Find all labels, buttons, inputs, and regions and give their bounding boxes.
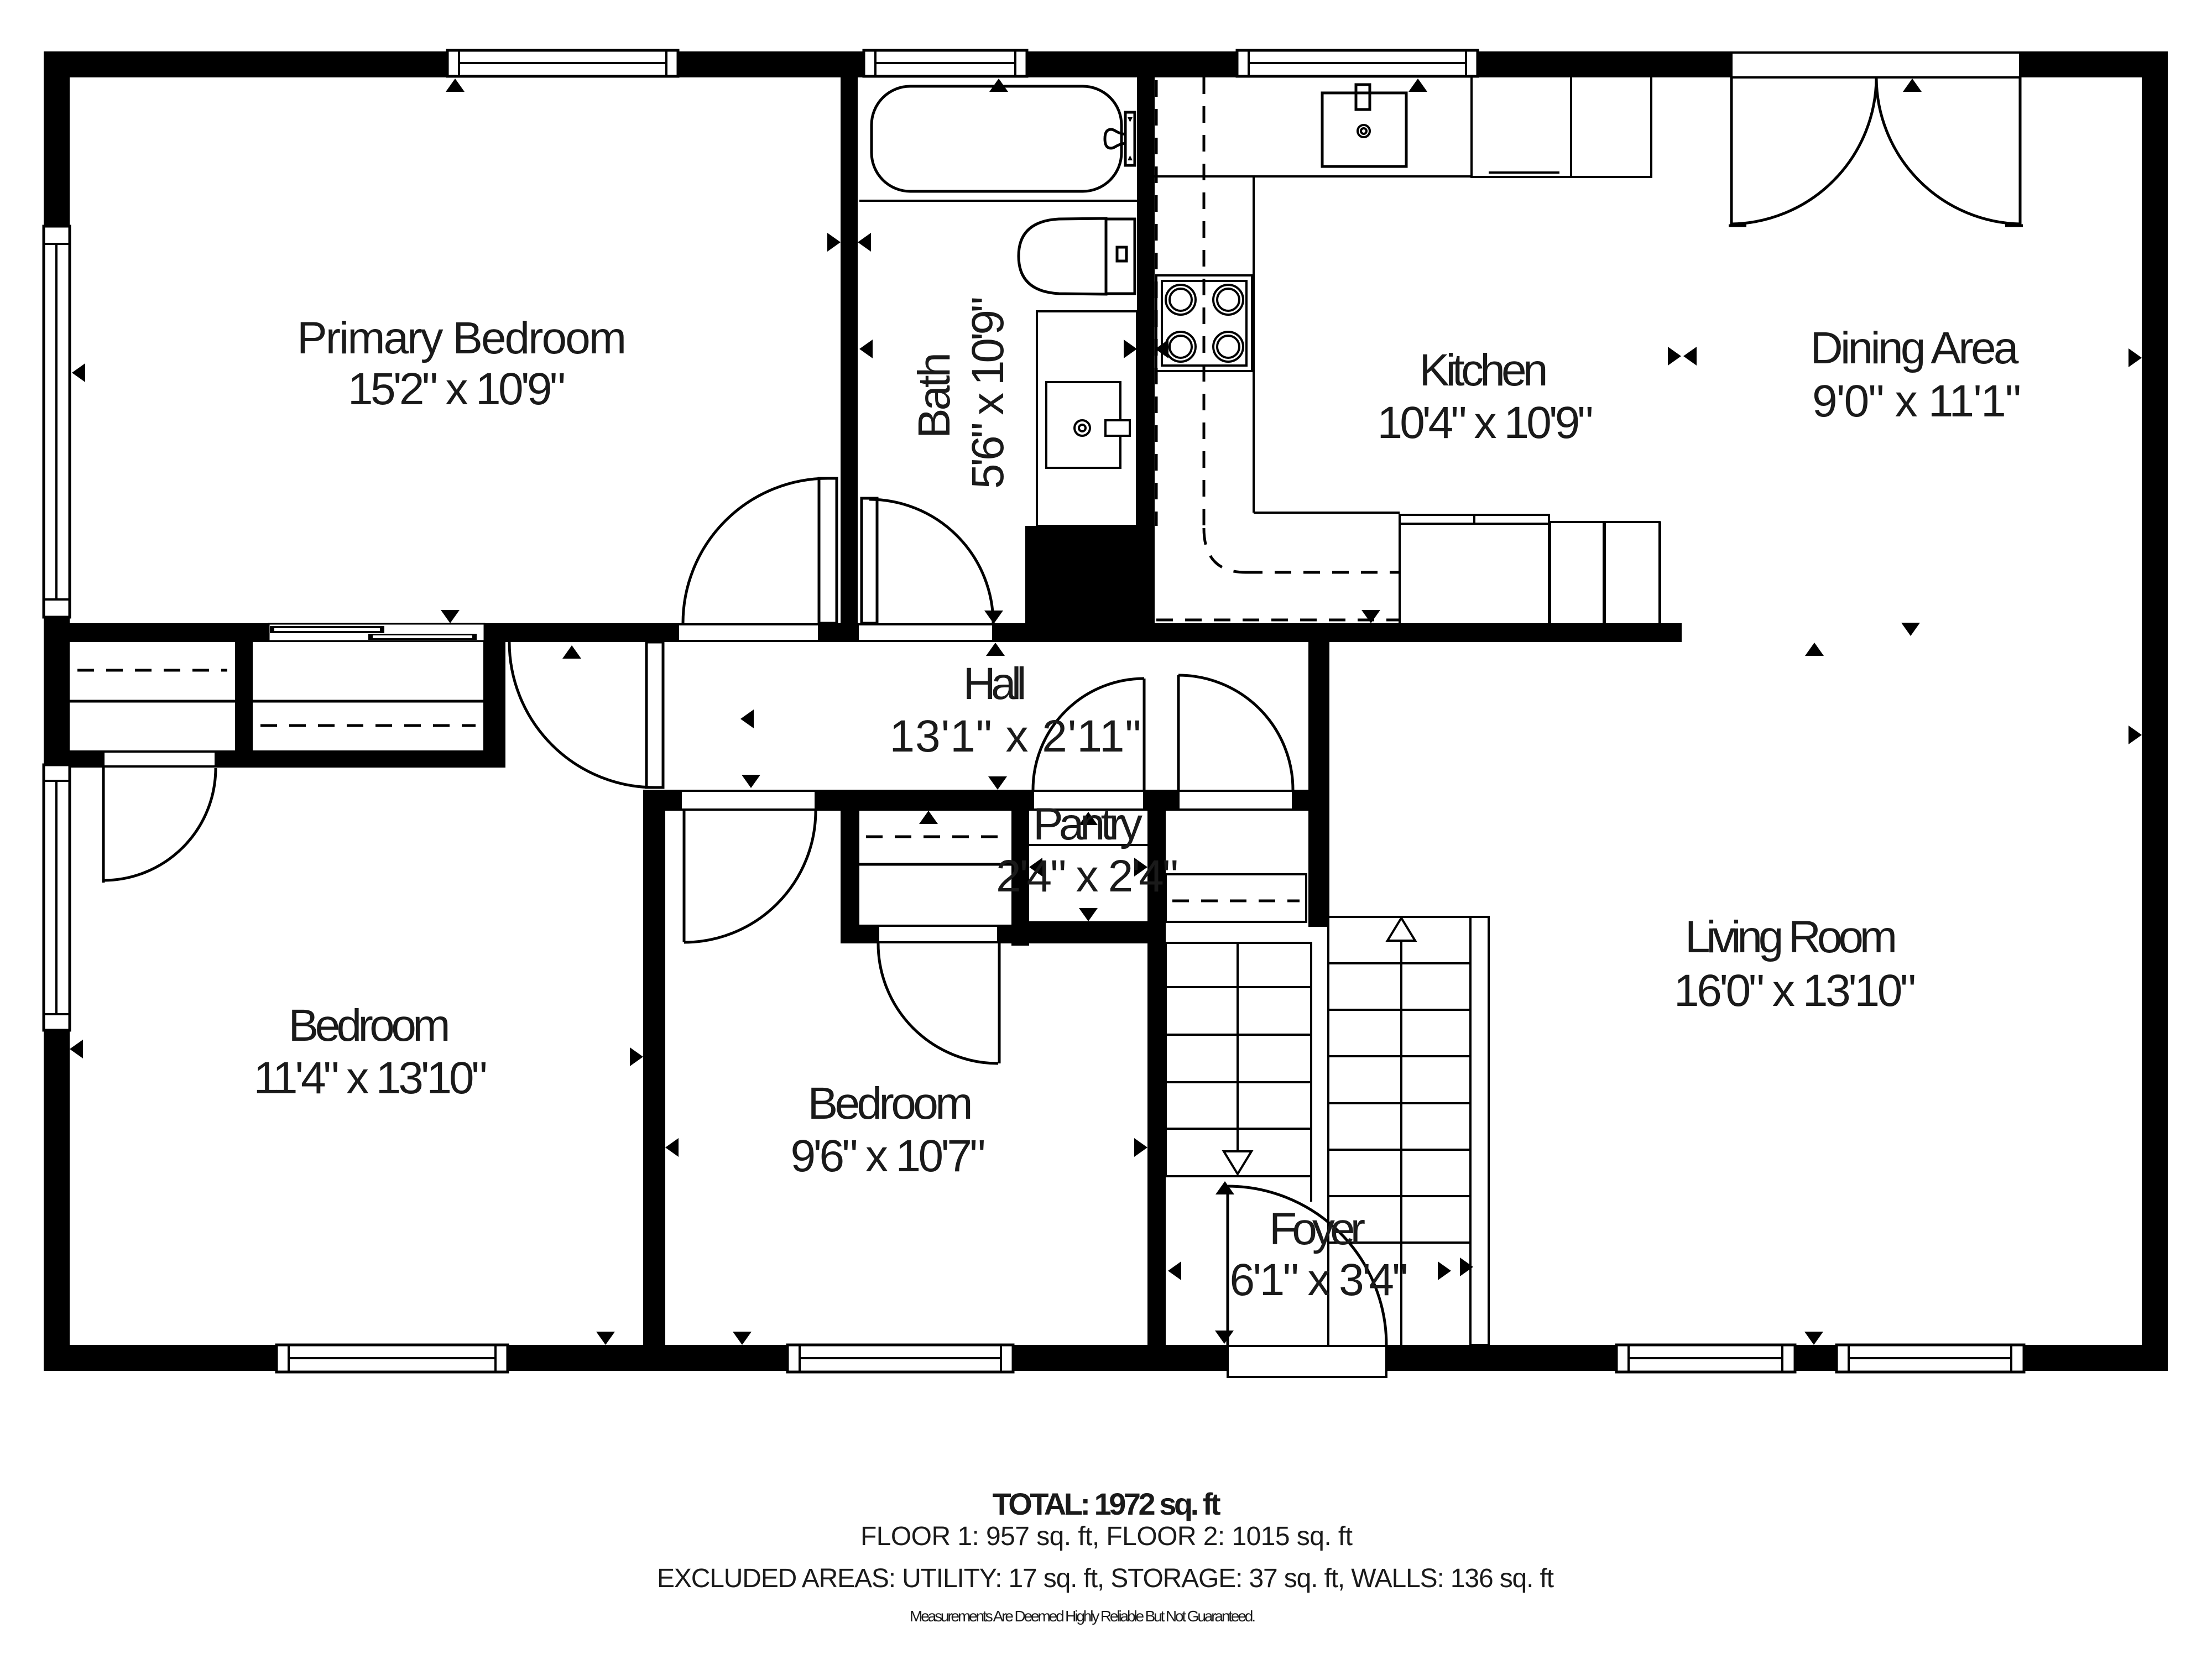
svg-text:Dining Area: Dining Area [1811, 323, 2019, 373]
svg-text:13'1" x 2'11": 13'1" x 2'11" [890, 711, 1141, 761]
svg-text:Measurements Are Deemed Highly: Measurements Are Deemed Highly Reliable … [910, 1608, 1256, 1625]
svg-text:9'0" x 11'1": 9'0" x 11'1" [1812, 376, 2021, 426]
svg-text:16'0" x 13'10": 16'0" x 13'10" [1674, 966, 1916, 1016]
svg-text:Primary Bedroom: Primary Bedroom [297, 313, 627, 363]
svg-text:5'6" x 10'9": 5'6" x 10'9" [963, 296, 1013, 489]
svg-text:11'4" x 13'10": 11'4" x 13'10" [254, 1053, 488, 1103]
svg-text:Bedroom: Bedroom [289, 1000, 451, 1051]
svg-text:Living Room: Living Room [1685, 912, 1897, 962]
svg-text:9'6" x 10'7": 9'6" x 10'7" [791, 1131, 986, 1181]
svg-text:Pantry: Pantry [1033, 799, 1142, 849]
svg-text:Bedroom: Bedroom [808, 1078, 973, 1129]
svg-text:Hall: Hall [963, 659, 1027, 709]
svg-text:TOTAL: 1972 sq. ft: TOTAL: 1972 sq. ft [993, 1486, 1221, 1521]
svg-text:15'2" x 10'9": 15'2" x 10'9" [348, 364, 566, 414]
svg-text:10'4" x 10'9": 10'4" x 10'9" [1378, 398, 1594, 448]
svg-text:Kitchen: Kitchen [1420, 345, 1548, 395]
svg-text:Bath: Bath [909, 352, 959, 439]
svg-text:2'4" x 2'4": 2'4" x 2'4" [996, 851, 1178, 901]
svg-text:FLOOR 1: 957 sq. ft, FLOOR 2:: FLOOR 1: 957 sq. ft, FLOOR 2: 1015 sq. f… [860, 1522, 1353, 1551]
svg-text:6'1" x 3'4": 6'1" x 3'4" [1230, 1255, 1408, 1305]
svg-text:Foyer: Foyer [1269, 1204, 1365, 1254]
svg-text:EXCLUDED AREAS: UTILITY: 17 sq: EXCLUDED AREAS: UTILITY: 17 sq. ft, STOR… [657, 1564, 1554, 1593]
